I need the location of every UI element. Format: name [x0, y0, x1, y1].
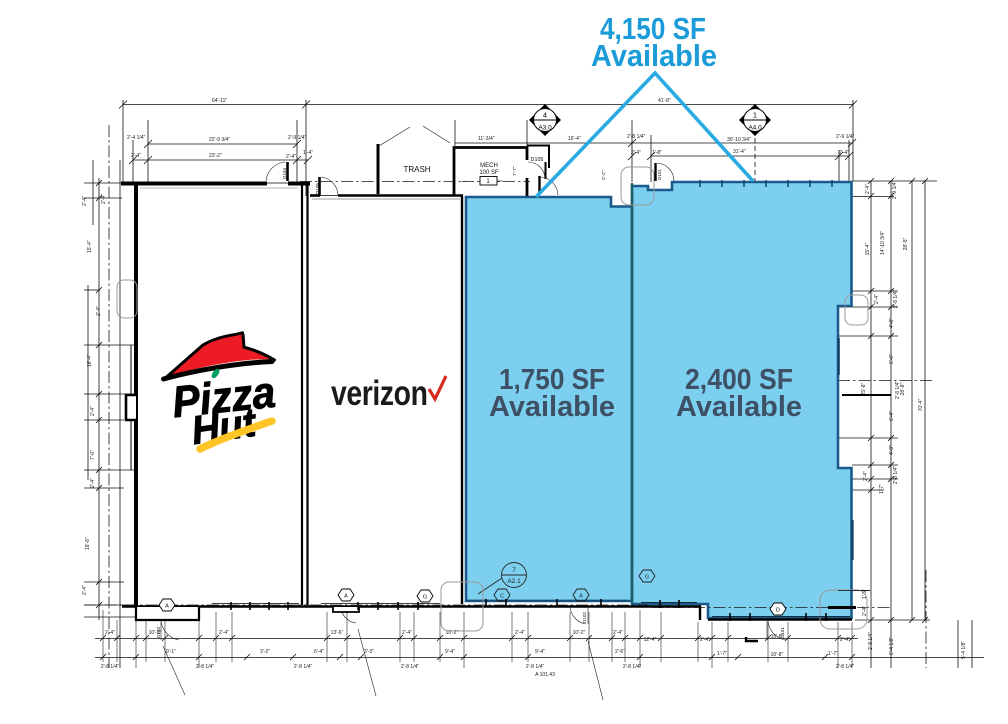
- svg-text:A4.0: A4.0: [748, 125, 762, 132]
- svg-text:2'-8 1/4": 2'-8 1/4": [401, 664, 420, 670]
- svg-text:Available: Available: [591, 39, 717, 73]
- svg-text:1'-7": 1'-7": [717, 651, 727, 657]
- svg-text:2'-4": 2'-4": [101, 194, 107, 204]
- svg-text:10'-2": 10'-2": [573, 630, 586, 636]
- svg-text:100 SF: 100 SF: [479, 170, 499, 176]
- svg-text:MECH: MECH: [480, 163, 498, 169]
- svg-text:D105: D105: [531, 157, 544, 163]
- svg-text:2'-4": 2'-4": [286, 154, 296, 160]
- svg-text:G: G: [645, 575, 649, 581]
- svg-text:64'-11": 64'-11": [212, 98, 227, 104]
- svg-text:1'-8": 1'-8": [652, 150, 662, 156]
- svg-text:31'-4": 31'-4": [733, 149, 746, 155]
- svg-text:3'-2": 3'-2": [260, 649, 270, 655]
- svg-text:30'-10 3/4": 30'-10 3/4": [727, 137, 751, 143]
- svg-text:22'-9 3/4": 22'-9 3/4": [209, 137, 230, 143]
- svg-text:2'-4": 2'-4": [90, 406, 96, 416]
- svg-text:2'-8 1/4": 2'-8 1/4": [101, 664, 120, 670]
- svg-text:2'-4": 2'-4": [613, 630, 623, 636]
- svg-text:2'-8 1/4": 2'-8 1/4": [196, 664, 215, 670]
- svg-text:2'-4": 2'-4": [839, 150, 849, 156]
- svg-text:2'-4 1/4": 2'-4 1/4": [127, 135, 146, 141]
- svg-text:2'-4": 2'-4": [82, 196, 88, 206]
- svg-text:15'-4": 15'-4": [87, 240, 93, 253]
- svg-text:13'-6": 13'-6": [331, 630, 344, 636]
- svg-text:16'-4": 16'-4": [568, 136, 581, 142]
- svg-text:2'-4": 2'-4": [131, 153, 141, 159]
- svg-text:12'-4": 12'-4": [644, 637, 657, 643]
- svg-text:1'-7": 1'-7": [879, 484, 885, 494]
- svg-text:C: C: [500, 594, 504, 600]
- svg-text:11'-3/4": 11'-3/4": [478, 136, 495, 142]
- svg-text:9'-4": 9'-4": [445, 649, 455, 655]
- svg-text:14'-10 3/4": 14'-10 3/4": [880, 231, 886, 255]
- svg-text:Available: Available: [489, 391, 615, 423]
- svg-text:2'-4": 2'-4": [631, 150, 641, 156]
- svg-text:2'-8 1/4": 2'-8 1/4": [627, 134, 646, 140]
- svg-text:A2.1: A2.1: [507, 578, 521, 585]
- svg-text:2'-4": 2'-4": [219, 630, 229, 636]
- svg-text:2'-8 1/4": 2'-8 1/4": [526, 664, 545, 670]
- svg-text:3'-3": 3'-3": [364, 649, 374, 655]
- svg-text:D104: D104: [282, 168, 287, 179]
- svg-text:A: A: [579, 594, 583, 600]
- svg-text:2'-4": 2'-4": [863, 471, 869, 481]
- svg-text:70'-4": 70'-4": [918, 398, 924, 411]
- svg-text:7: 7: [512, 567, 516, 574]
- svg-text:Available: Available: [676, 391, 802, 423]
- svg-text:2'-8 1/4": 2'-8 1/4": [893, 290, 899, 309]
- svg-text:A 101.43: A 101.43: [535, 672, 555, 678]
- svg-text:10'-8": 10'-8": [771, 652, 784, 658]
- svg-text:7'-0": 7'-0": [90, 450, 96, 460]
- svg-text:4'-8": 4'-8": [889, 445, 895, 455]
- svg-text:2'-9 1/4": 2'-9 1/4": [836, 134, 855, 140]
- svg-text:D103: D103: [156, 627, 161, 638]
- svg-text:2'-4": 2'-4": [840, 637, 850, 643]
- svg-text:D: D: [776, 608, 780, 614]
- svg-text:2'-8 1/4": 2'-8 1/4": [893, 466, 899, 485]
- svg-text:D106: D106: [315, 183, 320, 194]
- svg-text:9'-1": 9'-1": [166, 649, 176, 655]
- svg-text:1: 1: [753, 111, 757, 120]
- svg-text:verizon: verizon: [331, 373, 428, 413]
- svg-text:2'-2": 2'-2": [601, 170, 607, 180]
- svg-text:28'-5": 28'-5": [903, 237, 909, 250]
- svg-text:TRASH: TRASH: [403, 165, 430, 174]
- svg-text:2'-8 1/4": 2'-8 1/4": [868, 632, 874, 651]
- svg-text:4: 4: [543, 111, 547, 120]
- svg-text:2'-4": 2'-4": [90, 478, 96, 488]
- svg-text:2'-8 1/4": 2'-8 1/4": [294, 664, 313, 670]
- svg-text:2'-4": 2'-4": [402, 630, 412, 636]
- svg-text:A3.0: A3.0: [538, 125, 552, 132]
- svg-text:6'-4 1/8": 6'-4 1/8": [889, 637, 895, 656]
- svg-text:2'-4": 2'-4": [82, 585, 88, 595]
- svg-text:16'-4": 16'-4": [87, 354, 93, 367]
- svg-text:2'-6": 2'-6": [615, 649, 625, 655]
- svg-text:1'-7": 1'-7": [828, 651, 838, 657]
- svg-text:9'-4": 9'-4": [535, 649, 545, 655]
- svg-text:2'-9 1/4": 2'-9 1/4": [892, 180, 898, 199]
- svg-text:2'-8 1/4": 2'-8 1/4": [623, 664, 642, 670]
- svg-text:18'-8": 18'-8": [85, 537, 91, 550]
- svg-text:2'-4": 2'-4": [700, 637, 710, 643]
- svg-text:7'-7": 7'-7": [512, 166, 518, 176]
- svg-text:2'-9 1/4": 2'-9 1/4": [288, 135, 307, 141]
- svg-text:41'-8": 41'-8": [658, 98, 671, 104]
- svg-text:1'-4": 1'-4": [303, 150, 313, 156]
- svg-text:6'-4": 6'-4": [314, 649, 324, 655]
- svg-text:D101: D101: [657, 169, 662, 180]
- svg-text:15'-4": 15'-4": [865, 242, 871, 255]
- svg-text:4'-8": 4'-8": [889, 318, 895, 328]
- svg-text:6'-4": 6'-4": [889, 411, 895, 421]
- svg-text:2'-4": 2'-4": [874, 294, 880, 304]
- svg-text:D102: D102: [582, 612, 587, 623]
- svg-text:2'-4": 2'-4": [96, 306, 102, 316]
- svg-text:2'-8 1/4": 2'-8 1/4": [836, 664, 855, 670]
- svg-text:23'-2": 23'-2": [209, 153, 222, 159]
- svg-text:A: A: [344, 594, 348, 600]
- svg-text:25'-8": 25'-8": [861, 382, 867, 395]
- svg-text:6'-6": 6'-6": [889, 354, 895, 364]
- svg-text:D101: D101: [780, 627, 785, 638]
- svg-text:5'-4 1/8": 5'-4 1/8": [961, 641, 967, 660]
- svg-text:2'-4": 2'-4": [105, 630, 115, 636]
- svg-text:28'-8": 28'-8": [900, 382, 906, 395]
- svg-text:A: A: [165, 604, 169, 610]
- svg-text:2'-4": 2'-4": [865, 184, 871, 194]
- svg-text:2'-4": 2'-4": [515, 630, 525, 636]
- svg-text:G: G: [423, 595, 427, 601]
